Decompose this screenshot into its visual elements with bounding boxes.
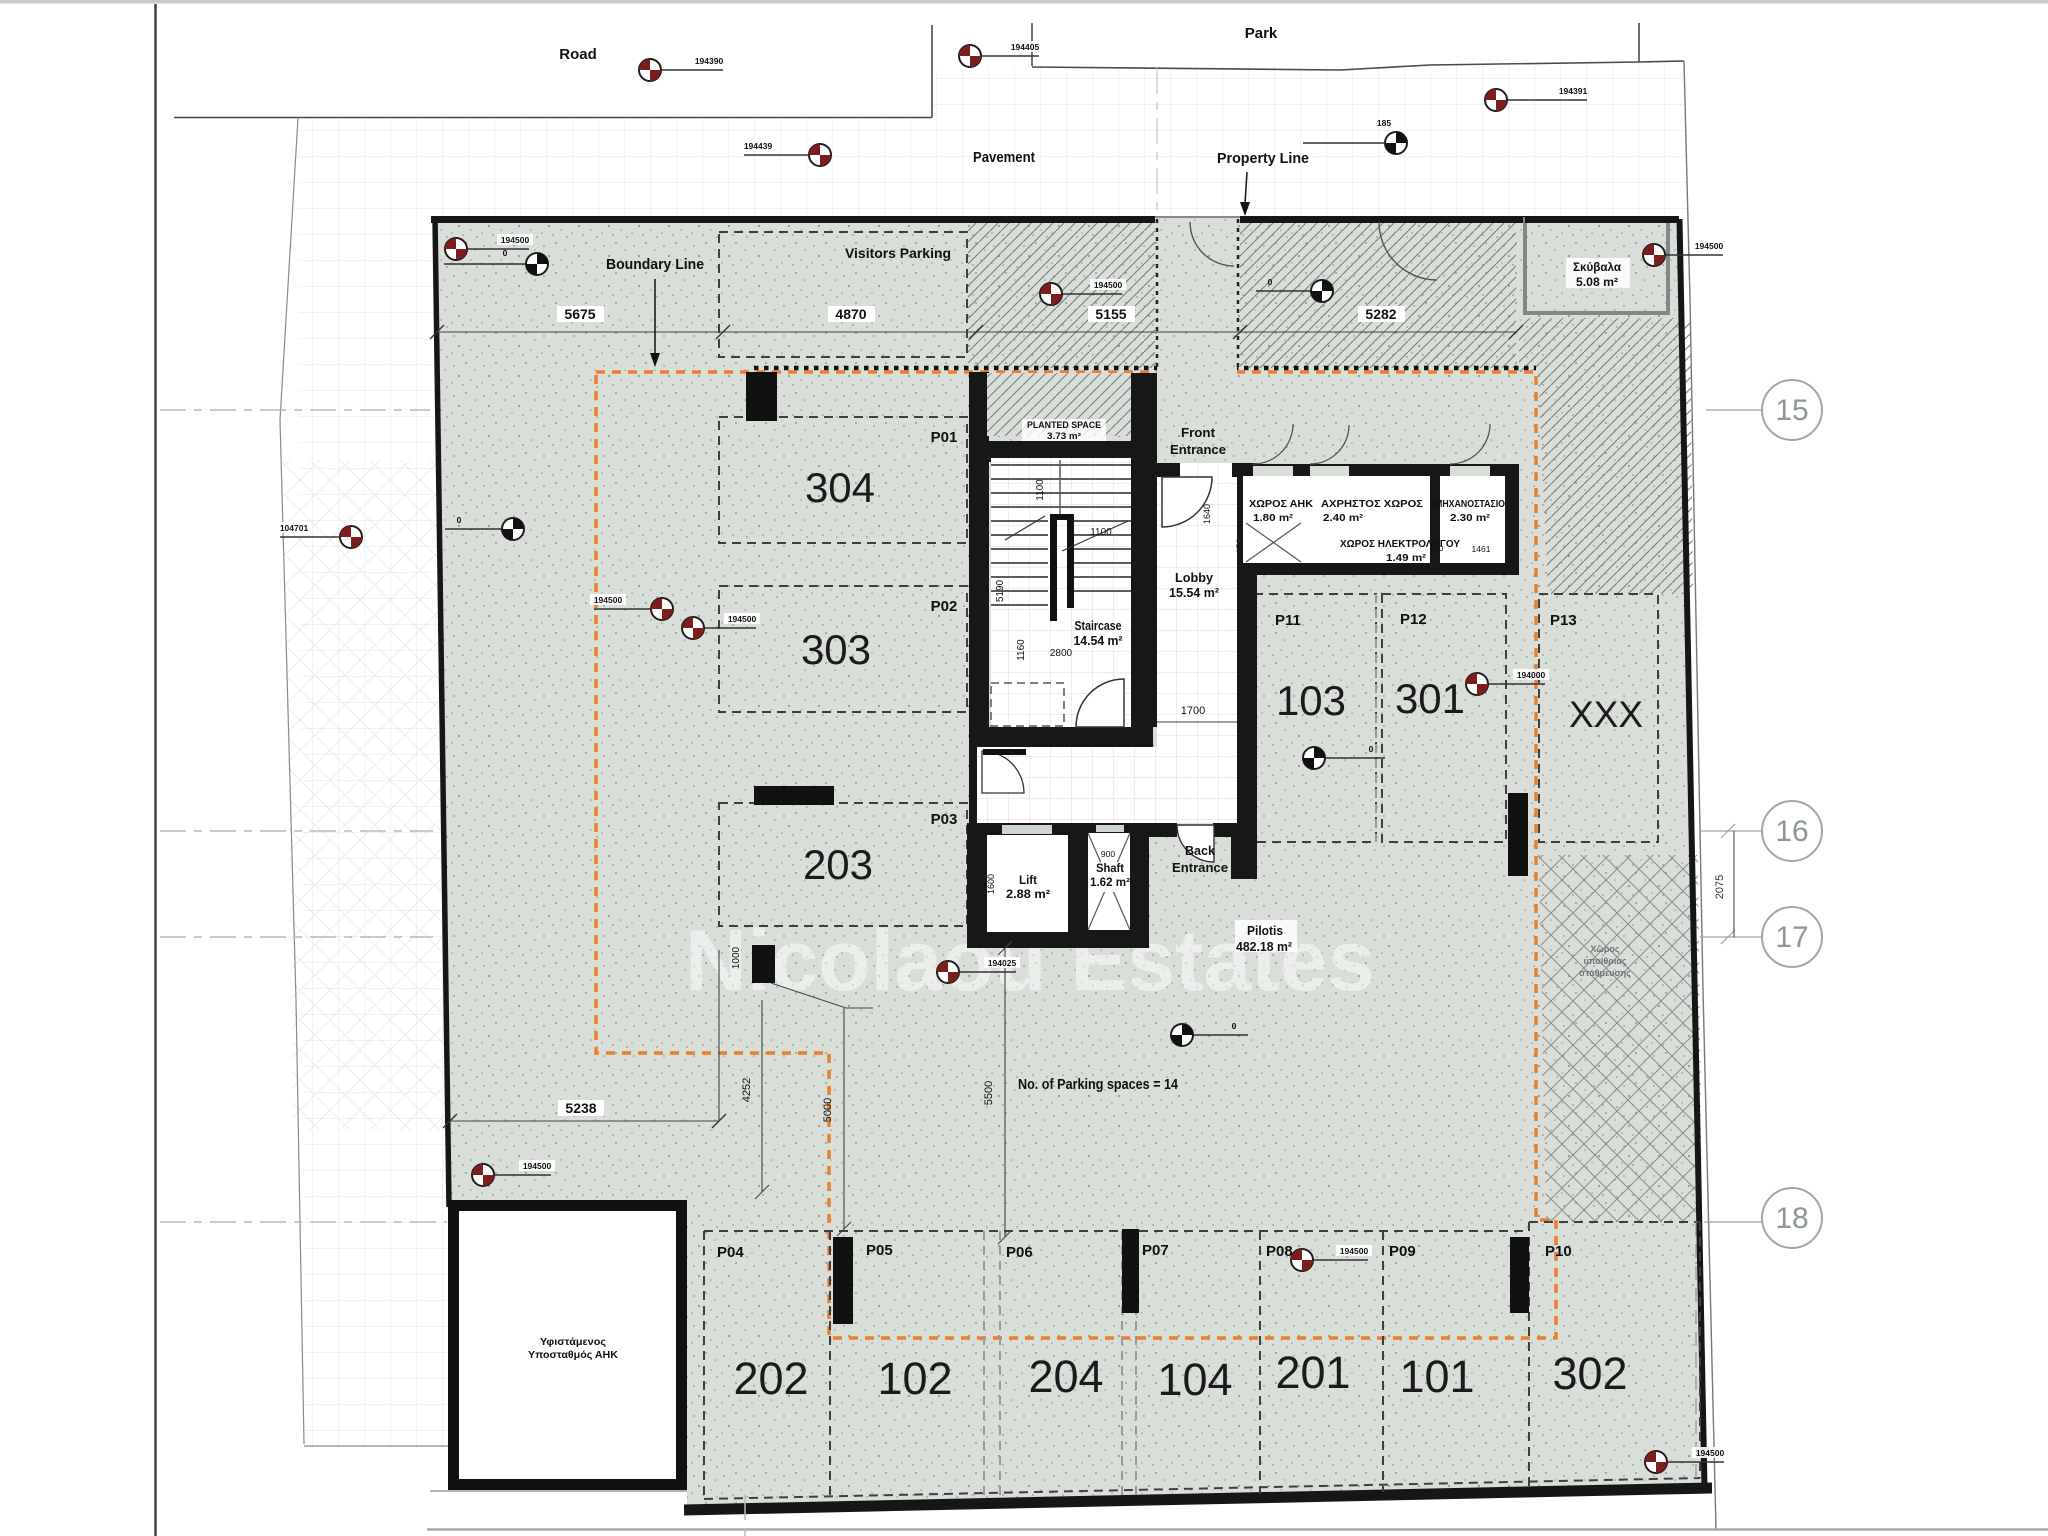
- svg-text:Pavement: Pavement: [973, 149, 1035, 166]
- svg-text:5155: 5155: [1095, 306, 1126, 322]
- svg-text:2800: 2800: [1050, 648, 1073, 659]
- svg-text:0: 0: [1268, 277, 1273, 287]
- svg-text:Lift: Lift: [1019, 873, 1037, 887]
- svg-text:18: 18: [1775, 1202, 1808, 1235]
- svg-text:1640: 1640: [1202, 504, 1212, 524]
- svg-text:102: 102: [877, 1353, 952, 1404]
- svg-text:Road: Road: [559, 46, 597, 63]
- svg-text:Visitors Parking: Visitors Parking: [845, 245, 951, 261]
- svg-text:103: 103: [1276, 677, 1346, 724]
- svg-text:1700: 1700: [1181, 705, 1205, 717]
- svg-text:1461: 1461: [1472, 544, 1491, 554]
- svg-text:Υφιστάμενος: Υφιστάμενος: [540, 1336, 607, 1348]
- svg-text:194000: 194000: [1517, 670, 1546, 680]
- svg-text:1.49 m²: 1.49 m²: [1386, 552, 1427, 564]
- svg-text:PLANTED SPACE: PLANTED SPACE: [1027, 420, 1101, 430]
- svg-text:1100: 1100: [1090, 527, 1112, 538]
- svg-text:301: 301: [1395, 675, 1465, 722]
- svg-text:P05: P05: [866, 1242, 893, 1259]
- svg-text:194439: 194439: [744, 141, 773, 151]
- svg-text:P02: P02: [931, 598, 958, 615]
- svg-text:υπαίθριας: υπαίθριας: [1583, 956, 1626, 966]
- svg-text:194405: 194405: [1011, 42, 1040, 52]
- svg-text:15: 15: [1775, 394, 1808, 427]
- svg-text:P04: P04: [717, 1244, 744, 1261]
- svg-text:P03: P03: [931, 811, 958, 828]
- svg-text:1160: 1160: [1016, 639, 1027, 661]
- svg-text:P10: P10: [1545, 1243, 1572, 1260]
- svg-text:17: 17: [1775, 921, 1808, 954]
- svg-text:185: 185: [1377, 118, 1391, 128]
- svg-text:194500: 194500: [728, 614, 757, 624]
- svg-text:304: 304: [805, 464, 875, 511]
- svg-text:194390: 194390: [695, 56, 724, 66]
- svg-text:Property Line: Property Line: [1217, 150, 1309, 167]
- svg-text:ΑΧΡΗΣΤΟΣ ΧΩΡΟΣ: ΑΧΡΗΣΤΟΣ ΧΩΡΟΣ: [1321, 498, 1423, 510]
- svg-text:900: 900: [1101, 849, 1115, 859]
- svg-text:5.08 m²: 5.08 m²: [1576, 275, 1618, 289]
- svg-text:Shaft: Shaft: [1096, 863, 1124, 875]
- svg-text:P06: P06: [1006, 1244, 1033, 1261]
- svg-text:0: 0: [503, 248, 508, 258]
- svg-text:1600: 1600: [986, 874, 996, 894]
- svg-text:5190: 5190: [995, 579, 1006, 602]
- svg-text:στάθμευσης: στάθμευσης: [1579, 968, 1631, 978]
- svg-text:194500: 194500: [1340, 1246, 1369, 1256]
- svg-text:202: 202: [733, 1353, 808, 1404]
- svg-text:204: 204: [1028, 1351, 1103, 1402]
- svg-text:104: 104: [1157, 1354, 1232, 1405]
- svg-text:101: 101: [1399, 1351, 1474, 1402]
- svg-text:No. of Parking spaces = 14: No. of Parking spaces = 14: [1018, 1076, 1179, 1093]
- svg-text:P11: P11: [1275, 612, 1301, 629]
- svg-text:5238: 5238: [565, 1100, 596, 1116]
- svg-text:302: 302: [1552, 1348, 1627, 1399]
- svg-text:ΧΩΡΟΣ ΑΗΚ: ΧΩΡΟΣ ΑΗΚ: [1249, 498, 1313, 510]
- svg-text:2.88 m²: 2.88 m²: [1006, 887, 1050, 901]
- svg-text:5500: 5500: [983, 1081, 995, 1105]
- svg-text:Back: Back: [1185, 844, 1215, 858]
- svg-text:2.40 m²: 2.40 m²: [1323, 512, 1364, 524]
- svg-text:P08: P08: [1266, 1243, 1293, 1260]
- svg-text:Entrance: Entrance: [1170, 443, 1226, 457]
- svg-text:P09: P09: [1389, 1243, 1416, 1260]
- svg-text:4870: 4870: [835, 306, 866, 322]
- svg-text:Staircase: Staircase: [1075, 619, 1122, 633]
- svg-text:1100: 1100: [1035, 479, 1046, 501]
- svg-text:194500: 194500: [523, 1161, 552, 1171]
- svg-text:194500: 194500: [501, 235, 530, 245]
- svg-text:194500: 194500: [1696, 1448, 1725, 1458]
- svg-text:482.18 m²: 482.18 m²: [1236, 940, 1292, 954]
- svg-text:5282: 5282: [1365, 306, 1396, 322]
- svg-text:194500: 194500: [1094, 280, 1123, 290]
- svg-text:P01: P01: [931, 429, 958, 446]
- svg-text:XXX: XXX: [1569, 694, 1643, 735]
- svg-text:Entrance: Entrance: [1172, 861, 1228, 875]
- svg-text:194500: 194500: [1695, 241, 1724, 251]
- svg-text:Χώρος: Χώρος: [1590, 944, 1620, 954]
- svg-text:1000: 1000: [731, 946, 742, 969]
- svg-text:Pilotis: Pilotis: [1247, 924, 1283, 938]
- svg-text:0: 0: [1232, 1021, 1237, 1031]
- svg-text:Boundary Line: Boundary Line: [606, 256, 704, 273]
- svg-text:1.80 m²: 1.80 m²: [1253, 512, 1294, 524]
- svg-text:2.30 m²: 2.30 m²: [1450, 512, 1491, 524]
- svg-text:0: 0: [457, 515, 462, 525]
- svg-text:194025: 194025: [988, 958, 1017, 968]
- svg-text:201: 201: [1275, 1347, 1350, 1398]
- svg-text:Front: Front: [1181, 426, 1216, 440]
- svg-text:1.62 m²: 1.62 m²: [1090, 877, 1130, 889]
- svg-text:14.54 m²: 14.54 m²: [1074, 634, 1123, 648]
- svg-text:ΜΗΧΑΝΟΣΤΑΣΙΟ: ΜΗΧΑΝΟΣΤΑΣΙΟ: [1435, 498, 1505, 510]
- svg-text:Υποσταθμός ΑΗΚ: Υποσταθμός ΑΗΚ: [528, 1349, 618, 1361]
- svg-text:104701: 104701: [280, 523, 309, 533]
- svg-text:15.54 m²: 15.54 m²: [1169, 586, 1219, 600]
- svg-text:3.73 m²: 3.73 m²: [1047, 431, 1081, 441]
- svg-text:Σκύβαλα: Σκύβαλα: [1573, 260, 1622, 274]
- svg-text:203: 203: [803, 841, 873, 888]
- svg-text:303: 303: [801, 626, 871, 673]
- svg-text:2075: 2075: [1714, 875, 1726, 899]
- svg-text:Lobby: Lobby: [1175, 571, 1213, 585]
- svg-text:194391: 194391: [1559, 86, 1588, 96]
- svg-text:5675: 5675: [564, 306, 595, 322]
- svg-text:Park: Park: [1245, 25, 1278, 42]
- svg-text:194500: 194500: [594, 595, 623, 605]
- svg-text:P13: P13: [1550, 612, 1577, 629]
- svg-text:5000: 5000: [822, 1098, 834, 1122]
- svg-text:0: 0: [1369, 744, 1374, 754]
- svg-text:P07: P07: [1142, 1242, 1169, 1259]
- svg-text:4252: 4252: [741, 1078, 753, 1102]
- svg-text:P12: P12: [1400, 611, 1427, 628]
- svg-text:16: 16: [1775, 815, 1808, 848]
